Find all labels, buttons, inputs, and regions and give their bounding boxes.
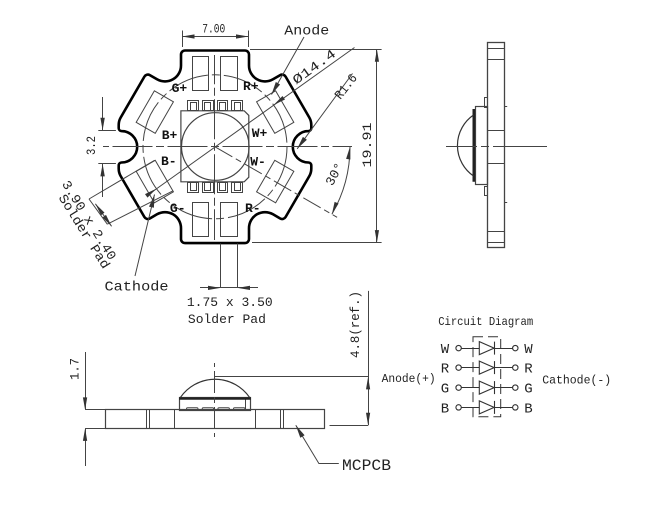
svg-text:7.00: 7.00 — [202, 22, 225, 37]
svg-text:MCPCB: MCPCB — [342, 457, 391, 475]
svg-text:19.91: 19.91 — [360, 122, 375, 167]
svg-text:W+: W+ — [252, 126, 268, 141]
svg-text:G: G — [441, 382, 449, 398]
svg-text:G-: G- — [170, 201, 186, 216]
svg-text:B-: B- — [161, 154, 177, 169]
svg-text:B: B — [441, 401, 449, 417]
svg-text:G+: G+ — [172, 81, 188, 96]
svg-text:R: R — [524, 362, 533, 378]
svg-text:Circuit Diagram: Circuit Diagram — [438, 315, 533, 329]
svg-text:B+: B+ — [162, 128, 178, 143]
svg-text:Solder Pad: Solder Pad — [188, 312, 266, 327]
svg-text:R+: R+ — [243, 79, 259, 94]
svg-text:Anode(+): Anode(+) — [382, 372, 436, 386]
svg-text:W: W — [441, 342, 450, 358]
svg-text:R: R — [441, 362, 450, 378]
svg-text:W-: W- — [250, 155, 266, 170]
svg-text:3.2: 3.2 — [84, 136, 99, 155]
svg-text:Ø14.4: Ø14.4 — [290, 46, 339, 88]
svg-text:4.8(ref.): 4.8(ref.) — [348, 291, 363, 358]
svg-text:Cathode(-): Cathode(-) — [542, 374, 611, 388]
svg-text:1.7: 1.7 — [68, 358, 83, 380]
svg-text:B: B — [524, 401, 532, 417]
svg-text:G: G — [524, 382, 532, 398]
svg-text:Cathode: Cathode — [105, 280, 169, 296]
svg-text:Anode: Anode — [284, 24, 329, 40]
svg-text:1.75 x 3.50: 1.75 x 3.50 — [187, 295, 273, 310]
svg-text:R-: R- — [245, 201, 261, 216]
svg-text:R1.6: R1.6 — [332, 71, 361, 102]
svg-text:W: W — [524, 342, 533, 358]
svg-text:30°: 30° — [323, 160, 348, 188]
